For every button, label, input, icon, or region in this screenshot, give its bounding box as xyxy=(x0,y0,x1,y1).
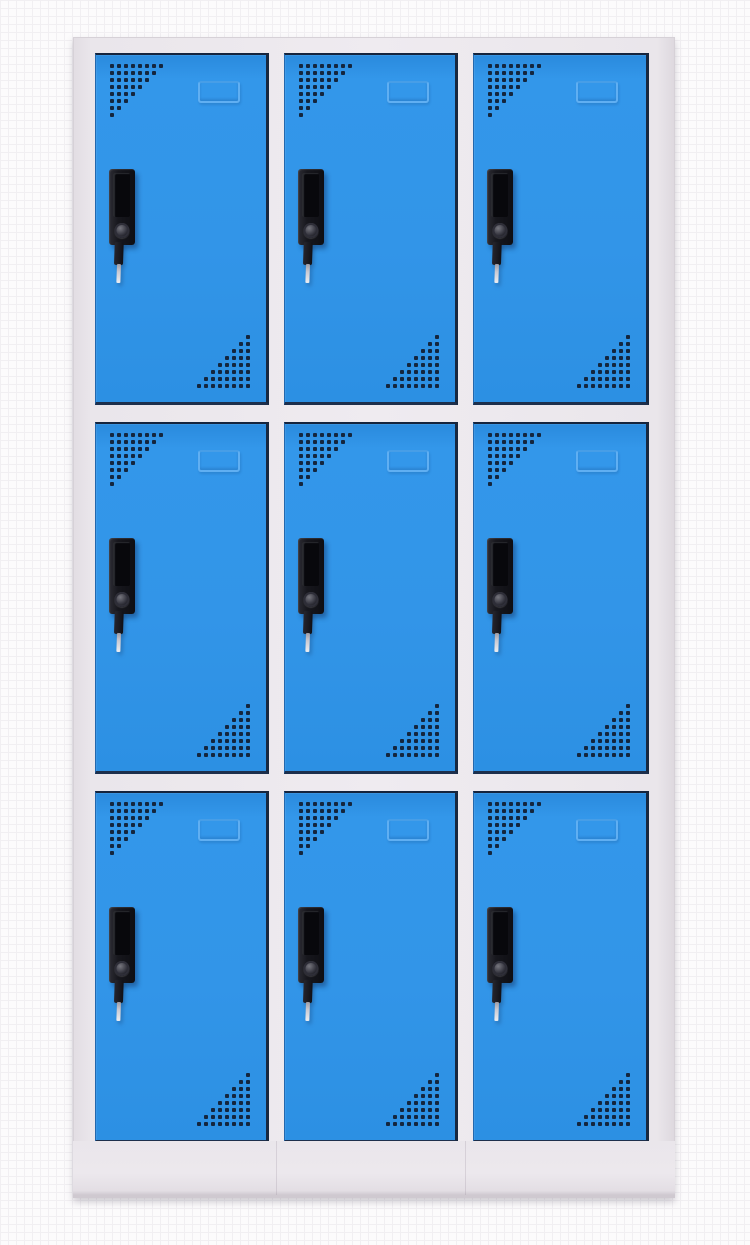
vent-hole xyxy=(435,335,439,339)
vent-hole xyxy=(488,844,492,848)
vent-hole xyxy=(488,447,492,451)
key-shaft xyxy=(494,633,499,652)
vent-hole xyxy=(232,377,236,381)
vent-hole xyxy=(138,440,142,444)
vent-hole xyxy=(246,711,250,715)
label-card-holder xyxy=(387,819,429,841)
vent-hole xyxy=(152,802,156,806)
vent-hole xyxy=(124,64,128,68)
vent-hole xyxy=(393,1115,397,1119)
handle-grip-recess xyxy=(302,542,319,586)
label-card-holder xyxy=(198,81,240,103)
vent-hole xyxy=(138,433,142,437)
vent-hole xyxy=(488,85,492,89)
vent-hole xyxy=(117,837,121,841)
handle-grip-recess xyxy=(113,173,130,217)
vent-hole xyxy=(626,718,630,722)
vent-hole xyxy=(421,356,425,360)
vent-hole xyxy=(626,1101,630,1105)
vent-hole xyxy=(495,85,499,89)
vent-hole xyxy=(239,370,243,374)
vent-hole xyxy=(197,1122,201,1126)
door-handle xyxy=(298,907,324,983)
key-in-lock xyxy=(113,980,125,1024)
vent-hole xyxy=(584,384,588,388)
vent-hole xyxy=(117,106,121,110)
vent-hole xyxy=(495,837,499,841)
vent-hole xyxy=(327,447,331,451)
vent-hole xyxy=(502,440,506,444)
locker-cabinet xyxy=(73,37,675,1198)
door-4 xyxy=(95,422,269,774)
vent-hole xyxy=(428,1101,432,1105)
vent-perforation-bottom-right xyxy=(577,704,633,760)
vent-hole xyxy=(124,433,128,437)
vent-hole xyxy=(509,92,513,96)
vent-hole xyxy=(523,440,527,444)
vent-hole xyxy=(605,725,609,729)
vent-hole xyxy=(495,468,499,472)
vent-hole xyxy=(435,753,439,757)
key-head xyxy=(114,980,124,1003)
vent-hole xyxy=(428,753,432,757)
vent-hole xyxy=(117,823,121,827)
key-in-lock xyxy=(302,242,314,286)
vent-hole xyxy=(619,1094,623,1098)
vent-hole xyxy=(516,447,520,451)
vent-hole xyxy=(605,384,609,388)
vent-hole xyxy=(232,739,236,743)
vent-hole xyxy=(299,433,303,437)
vent-hole xyxy=(428,377,432,381)
vent-hole xyxy=(313,823,317,827)
vent-hole xyxy=(299,99,303,103)
vent-hole xyxy=(435,739,439,743)
vent-hole xyxy=(232,1108,236,1112)
vent-hole xyxy=(124,85,128,89)
vent-hole xyxy=(612,384,616,388)
vent-hole xyxy=(246,1080,250,1084)
vent-hole xyxy=(232,1122,236,1126)
vent-hole xyxy=(516,440,520,444)
vent-perforation-bottom-right xyxy=(386,335,442,391)
vent-hole xyxy=(110,454,114,458)
vent-hole xyxy=(407,746,411,750)
vent-perforation-top-left xyxy=(299,802,355,858)
key-shaft xyxy=(116,633,121,652)
vent-hole xyxy=(211,1108,215,1112)
vent-hole xyxy=(306,816,310,820)
vent-hole xyxy=(537,433,541,437)
vent-hole xyxy=(421,1108,425,1112)
vent-hole xyxy=(488,816,492,820)
vent-hole xyxy=(145,433,149,437)
vent-hole xyxy=(211,377,215,381)
vent-hole xyxy=(239,384,243,388)
vent-perforation-bottom-right xyxy=(577,335,633,391)
key-in-lock xyxy=(302,611,314,655)
door-2 xyxy=(284,53,458,405)
vent-hole xyxy=(502,447,506,451)
handle-grip-recess xyxy=(491,173,508,217)
vent-hole xyxy=(110,475,114,479)
vent-hole xyxy=(299,106,303,110)
vent-hole xyxy=(509,447,513,451)
vent-hole xyxy=(428,725,432,729)
vent-hole xyxy=(598,732,602,736)
vent-hole xyxy=(516,78,520,82)
vent-hole xyxy=(246,1087,250,1091)
vent-hole xyxy=(619,342,623,346)
key-in-lock xyxy=(113,611,125,655)
vent-hole xyxy=(612,739,616,743)
vent-hole xyxy=(246,370,250,374)
vent-hole xyxy=(435,1080,439,1084)
vent-hole xyxy=(414,1094,418,1098)
vent-hole xyxy=(131,85,135,89)
door-handle xyxy=(109,538,135,614)
vent-hole xyxy=(626,1108,630,1112)
vent-hole xyxy=(299,802,303,806)
vent-hole xyxy=(348,64,352,68)
vent-hole xyxy=(117,92,121,96)
vent-hole xyxy=(152,433,156,437)
vent-hole xyxy=(502,802,506,806)
vent-hole xyxy=(131,92,135,96)
vent-hole xyxy=(313,433,317,437)
vent-hole xyxy=(320,447,324,451)
vent-perforation-top-left xyxy=(110,64,166,120)
vent-hole xyxy=(523,447,527,451)
lock-cylinder-icon xyxy=(304,592,319,607)
vent-hole xyxy=(435,370,439,374)
vent-hole xyxy=(414,1115,418,1119)
vent-hole xyxy=(509,823,513,827)
vent-hole xyxy=(152,809,156,813)
vent-hole xyxy=(124,440,128,444)
vent-hole xyxy=(320,64,324,68)
vent-hole xyxy=(530,64,534,68)
vent-hole xyxy=(299,844,303,848)
vent-hole xyxy=(117,844,121,848)
vent-hole xyxy=(626,1115,630,1119)
vent-hole xyxy=(204,377,208,381)
lock-cylinder-icon xyxy=(304,961,319,976)
door-1 xyxy=(95,53,269,405)
vent-hole xyxy=(612,746,616,750)
vent-hole xyxy=(619,1115,623,1119)
vent-hole xyxy=(495,71,499,75)
vent-hole xyxy=(488,468,492,472)
vent-hole xyxy=(320,461,324,465)
vent-hole xyxy=(239,732,243,736)
vent-hole xyxy=(435,1101,439,1105)
key-head xyxy=(114,242,124,265)
vent-hole xyxy=(110,816,114,820)
vent-hole xyxy=(239,349,243,353)
door-handle xyxy=(487,907,513,983)
vent-hole xyxy=(124,447,128,451)
vent-hole xyxy=(110,447,114,451)
vent-hole xyxy=(117,71,121,75)
vent-hole xyxy=(110,468,114,472)
vent-hole xyxy=(299,830,303,834)
vent-hole xyxy=(152,64,156,68)
vent-hole xyxy=(246,342,250,346)
vent-hole xyxy=(421,739,425,743)
vent-hole xyxy=(619,349,623,353)
vent-hole xyxy=(421,746,425,750)
vent-hole xyxy=(110,802,114,806)
vent-hole xyxy=(124,809,128,813)
vent-hole xyxy=(488,837,492,841)
vent-hole xyxy=(299,85,303,89)
handle-grip-recess xyxy=(491,911,508,955)
vent-hole xyxy=(598,1115,602,1119)
vent-hole xyxy=(320,823,324,827)
label-card-holder xyxy=(198,819,240,841)
vent-hole xyxy=(414,732,418,736)
vent-hole xyxy=(313,837,317,841)
vent-hole xyxy=(320,454,324,458)
vent-hole xyxy=(299,92,303,96)
lock-cylinder-icon xyxy=(304,223,319,238)
door-5 xyxy=(284,422,458,774)
vent-hole xyxy=(591,739,595,743)
vent-hole xyxy=(159,802,163,806)
vent-hole xyxy=(131,447,135,451)
vent-hole xyxy=(138,78,142,82)
vent-hole xyxy=(435,1115,439,1119)
vent-hole xyxy=(131,78,135,82)
vent-hole xyxy=(334,78,338,82)
vent-hole xyxy=(110,482,114,486)
vent-hole xyxy=(584,753,588,757)
vent-hole xyxy=(619,377,623,381)
vent-hole xyxy=(327,433,331,437)
vent-hole xyxy=(612,718,616,722)
vent-hole xyxy=(626,732,630,736)
vent-hole xyxy=(334,447,338,451)
vent-hole xyxy=(218,384,222,388)
vent-hole xyxy=(435,384,439,388)
vent-hole xyxy=(605,746,609,750)
vent-hole xyxy=(327,71,331,75)
vent-hole xyxy=(341,802,345,806)
vent-hole xyxy=(117,454,121,458)
vent-hole xyxy=(626,363,630,367)
vent-hole xyxy=(605,1122,609,1126)
vent-hole xyxy=(407,384,411,388)
vent-hole xyxy=(488,802,492,806)
vent-hole xyxy=(626,711,630,715)
vent-hole xyxy=(435,363,439,367)
vent-hole xyxy=(232,1087,236,1091)
vent-hole xyxy=(584,1115,588,1119)
vent-hole xyxy=(246,349,250,353)
vent-hole xyxy=(138,454,142,458)
vent-hole xyxy=(502,78,506,82)
vent-hole xyxy=(495,92,499,96)
vent-hole xyxy=(327,78,331,82)
vent-hole xyxy=(619,356,623,360)
vent-hole xyxy=(400,384,404,388)
vent-hole xyxy=(393,377,397,381)
handle-grip-recess xyxy=(302,173,319,217)
vent-hole xyxy=(225,356,229,360)
vent-hole xyxy=(211,746,215,750)
vent-hole xyxy=(495,454,499,458)
vent-hole xyxy=(218,732,222,736)
vent-hole xyxy=(516,85,520,89)
vent-hole xyxy=(299,468,303,472)
vent-hole xyxy=(299,461,303,465)
vent-hole xyxy=(488,475,492,479)
vent-hole xyxy=(537,64,541,68)
vent-hole xyxy=(530,802,534,806)
vent-hole xyxy=(239,363,243,367)
vent-hole xyxy=(313,454,317,458)
vent-hole xyxy=(414,356,418,360)
vent-hole xyxy=(502,99,506,103)
vent-hole xyxy=(619,739,623,743)
vent-hole xyxy=(488,809,492,813)
vent-hole xyxy=(537,802,541,806)
vent-hole xyxy=(414,370,418,374)
vent-hole xyxy=(246,1073,250,1077)
handle-grip-recess xyxy=(113,542,130,586)
vent-hole xyxy=(327,454,331,458)
vent-hole xyxy=(488,830,492,834)
vent-hole xyxy=(117,64,121,68)
vent-hole xyxy=(509,440,513,444)
vent-hole xyxy=(619,384,623,388)
vent-hole xyxy=(435,356,439,360)
vent-hole xyxy=(530,71,534,75)
vent-hole xyxy=(414,384,418,388)
vent-hole xyxy=(299,447,303,451)
vent-hole xyxy=(488,64,492,68)
vent-hole xyxy=(421,370,425,374)
vent-hole xyxy=(584,1122,588,1126)
vent-hole xyxy=(117,85,121,89)
vent-hole xyxy=(211,1115,215,1119)
vent-hole xyxy=(400,746,404,750)
door-handle xyxy=(109,169,135,245)
vent-hole xyxy=(598,377,602,381)
vent-hole xyxy=(612,349,616,353)
key-in-lock xyxy=(113,242,125,286)
vent-hole xyxy=(523,433,527,437)
vent-hole xyxy=(577,753,581,757)
vent-hole xyxy=(428,732,432,736)
vent-hole xyxy=(110,837,114,841)
vent-hole xyxy=(306,78,310,82)
vent-hole xyxy=(110,844,114,848)
vent-hole xyxy=(152,440,156,444)
vent-hole xyxy=(124,99,128,103)
vent-hole xyxy=(348,433,352,437)
vent-hole xyxy=(246,718,250,722)
vent-hole xyxy=(407,1108,411,1112)
vent-hole xyxy=(591,753,595,757)
label-card-holder xyxy=(576,81,618,103)
vent-hole xyxy=(612,1115,616,1119)
vent-hole xyxy=(110,78,114,82)
vent-hole xyxy=(341,440,345,444)
vent-hole xyxy=(225,1122,229,1126)
vent-hole xyxy=(211,384,215,388)
base-plinth xyxy=(73,1141,675,1195)
vent-hole xyxy=(612,1108,616,1112)
vent-hole xyxy=(414,1122,418,1126)
vent-hole xyxy=(218,1101,222,1105)
vent-hole xyxy=(428,739,432,743)
vent-hole xyxy=(239,746,243,750)
vent-hole xyxy=(488,92,492,96)
vent-hole xyxy=(523,64,527,68)
vent-hole xyxy=(428,711,432,715)
vent-hole xyxy=(612,377,616,381)
vent-hole xyxy=(509,830,513,834)
vent-hole xyxy=(502,454,506,458)
vent-hole xyxy=(110,106,114,110)
vent-hole xyxy=(626,349,630,353)
vent-hole xyxy=(320,802,324,806)
vent-hole xyxy=(523,809,527,813)
vent-hole xyxy=(232,1115,236,1119)
vent-hole xyxy=(218,753,222,757)
door-handle xyxy=(298,169,324,245)
vent-hole xyxy=(334,809,338,813)
vent-hole xyxy=(313,440,317,444)
vent-hole xyxy=(598,753,602,757)
vent-hole xyxy=(421,1122,425,1126)
vent-hole xyxy=(306,830,310,834)
vent-hole xyxy=(605,1115,609,1119)
vent-hole xyxy=(232,370,236,374)
vent-hole xyxy=(428,1094,432,1098)
vent-hole xyxy=(495,440,499,444)
vent-hole xyxy=(239,1087,243,1091)
key-shaft xyxy=(305,633,310,652)
vent-hole xyxy=(225,753,229,757)
vent-hole xyxy=(619,753,623,757)
key-head xyxy=(303,980,313,1003)
vent-hole xyxy=(211,739,215,743)
vent-hole xyxy=(246,384,250,388)
vent-hole xyxy=(414,1101,418,1105)
lock-cylinder-icon xyxy=(493,223,508,238)
vent-hole xyxy=(502,816,506,820)
vent-hole xyxy=(421,1101,425,1105)
vent-hole xyxy=(334,816,338,820)
vent-hole xyxy=(313,64,317,68)
vent-hole xyxy=(204,1115,208,1119)
vent-hole xyxy=(612,1087,616,1091)
vent-hole xyxy=(393,1122,397,1126)
vent-hole xyxy=(211,753,215,757)
vent-hole xyxy=(299,823,303,827)
vent-hole xyxy=(619,725,623,729)
vent-hole xyxy=(246,377,250,381)
vent-hole xyxy=(232,1094,236,1098)
key-head xyxy=(492,242,502,265)
vent-hole xyxy=(435,377,439,381)
vent-hole xyxy=(341,64,345,68)
vent-hole xyxy=(619,370,623,374)
vent-hole xyxy=(313,99,317,103)
